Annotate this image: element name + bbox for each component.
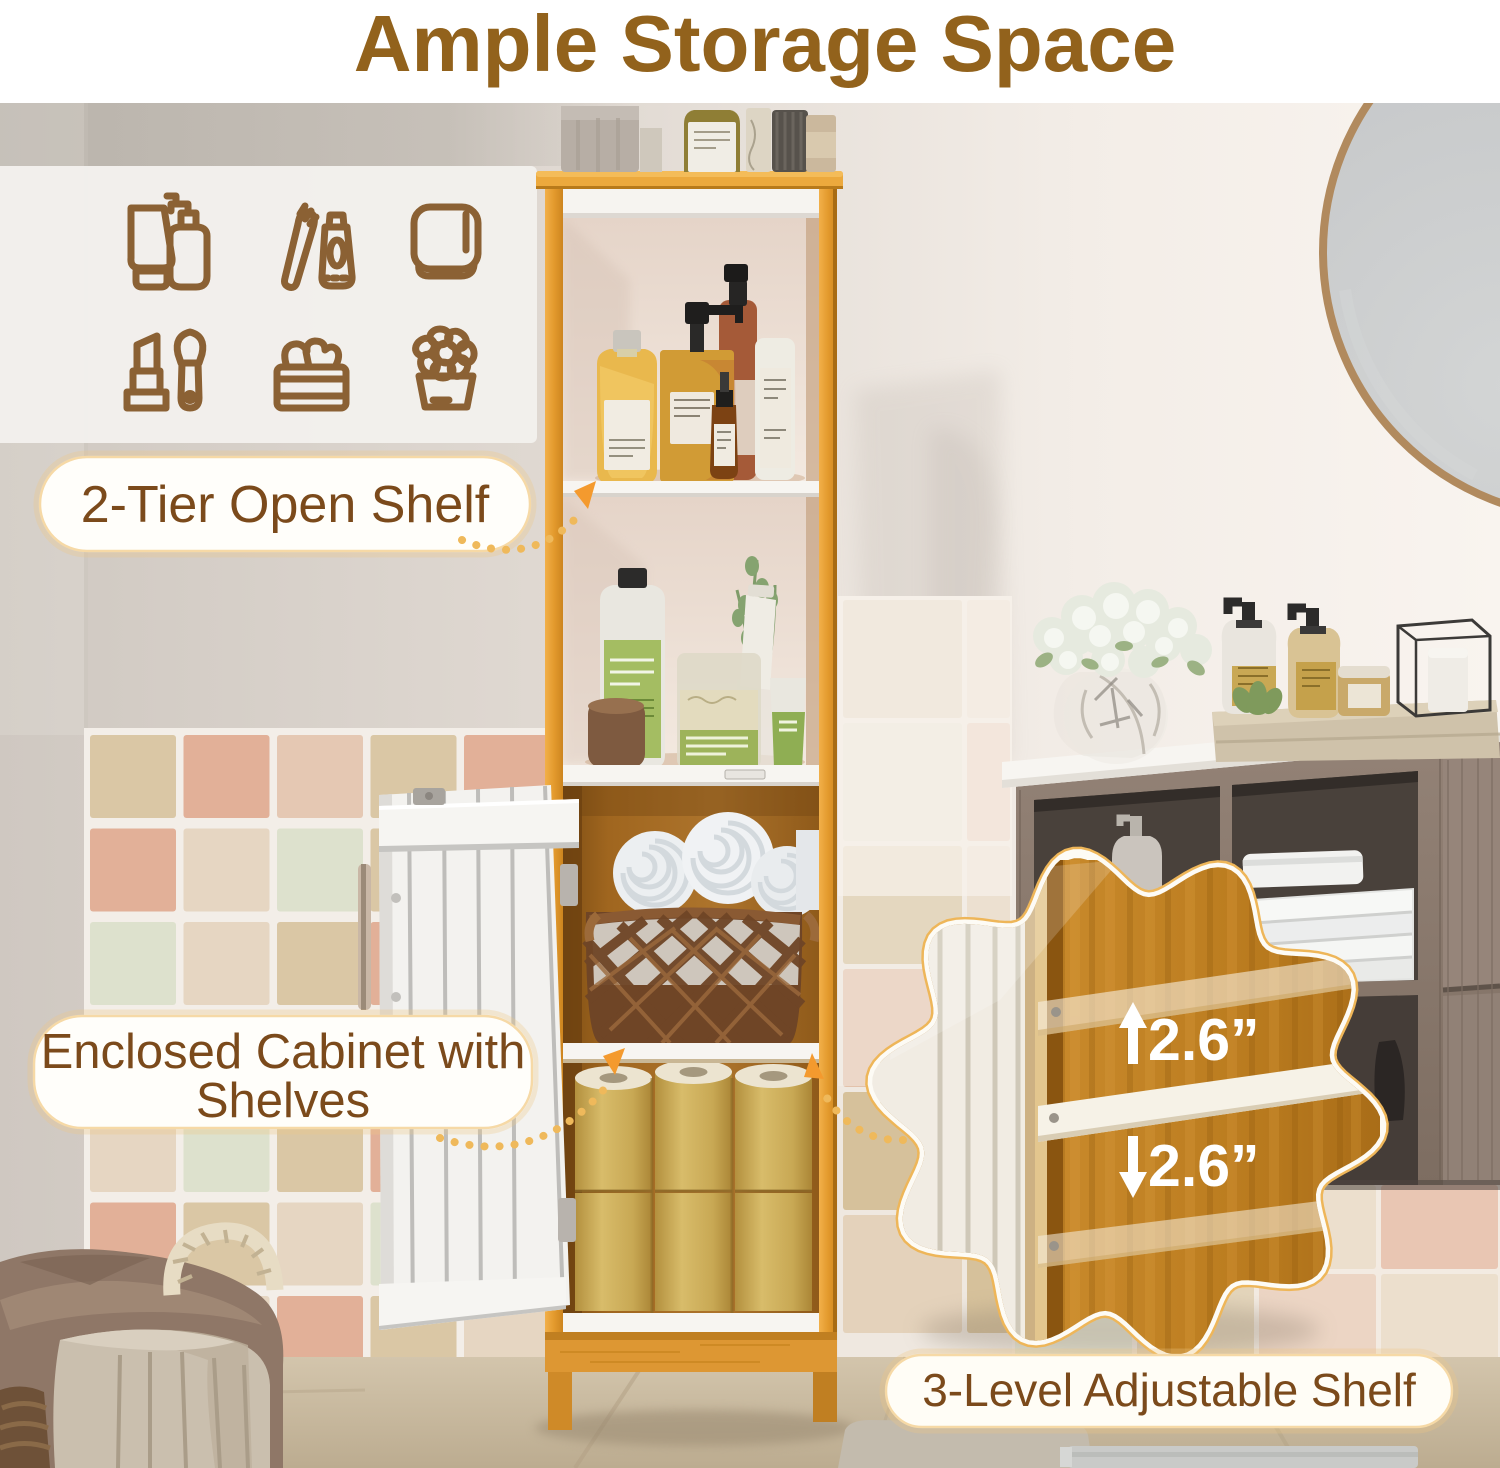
svg-text:2.6”: 2.6” <box>1148 1007 1260 1073</box>
svg-text:2-Tier Open Shelf: 2-Tier Open Shelf <box>81 476 490 534</box>
svg-text:Shelves: Shelves <box>196 1074 370 1128</box>
svg-text:3-Level Adjustable Shelf: 3-Level Adjustable Shelf <box>922 1364 1416 1416</box>
svg-text:2.6”: 2.6” <box>1148 1133 1260 1199</box>
svg-text:Enclosed Cabinet with: Enclosed Cabinet with <box>41 1025 526 1079</box>
svg-text:Ample Storage Space: Ample Storage Space <box>354 0 1177 88</box>
